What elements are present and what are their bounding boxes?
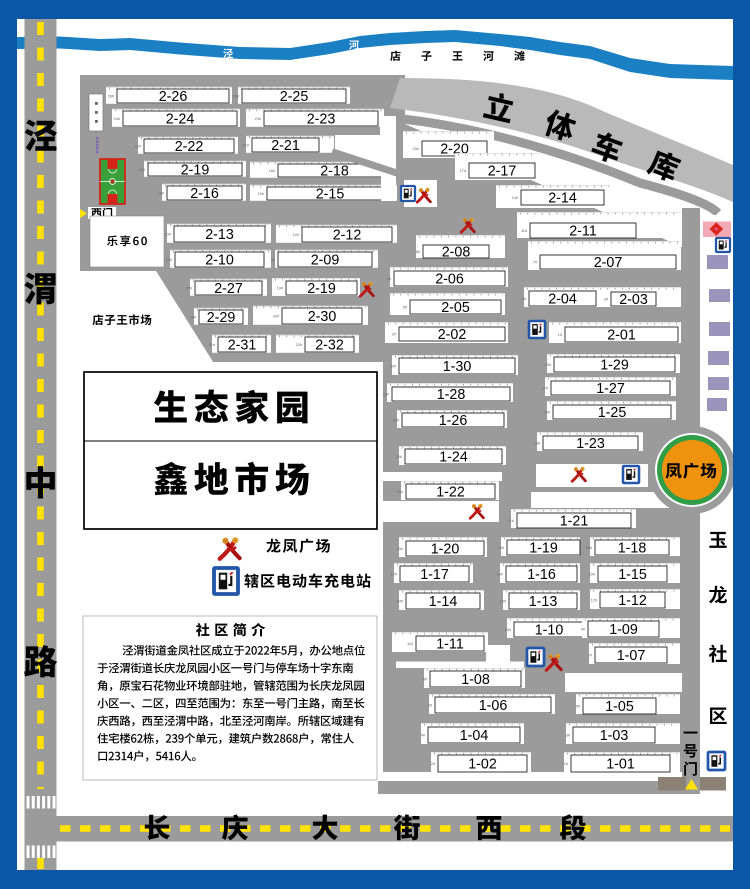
svg-text:25#: 25# <box>544 411 551 415</box>
svg-text:11#: 11# <box>521 229 528 233</box>
svg-text:30#: 30# <box>273 315 280 319</box>
svg-text:11#: 11# <box>407 642 414 646</box>
svg-text:2-04: 2-04 <box>548 292 577 308</box>
svg-text:14#: 14# <box>397 600 404 604</box>
svg-text:1-27: 1-27 <box>596 381 625 397</box>
svg-text:21#: 21# <box>508 519 515 523</box>
svg-text:2-05: 2-05 <box>441 300 470 316</box>
svg-text:12#: 12# <box>293 233 300 237</box>
svg-text:13#: 13# <box>165 233 172 237</box>
svg-text:20#: 20# <box>397 547 404 551</box>
svg-text:1-30: 1-30 <box>443 359 472 375</box>
svg-text:29#: 29# <box>190 316 197 320</box>
svg-text:12#: 12# <box>591 599 598 603</box>
svg-text:2-23: 2-23 <box>307 112 336 128</box>
svg-text:2-06: 2-06 <box>435 272 464 288</box>
svg-text:2-15: 2-15 <box>316 187 345 203</box>
svg-text:24#: 24# <box>114 117 121 121</box>
svg-text:17#: 17# <box>391 573 398 577</box>
svg-text:1-01: 1-01 <box>606 757 635 773</box>
svg-text:1-17: 1-17 <box>420 567 449 583</box>
svg-text:23#: 23# <box>255 117 262 121</box>
svg-text:14#: 14# <box>512 196 519 200</box>
svg-text:2-21: 2-21 <box>271 138 300 154</box>
svg-text:1-04: 1-04 <box>460 728 489 744</box>
svg-text:22#: 22# <box>397 490 404 494</box>
svg-text:1-25: 1-25 <box>598 405 627 421</box>
svg-text:15#: 15# <box>589 573 596 577</box>
svg-text:1-13: 1-13 <box>529 594 558 610</box>
svg-text:1-16: 1-16 <box>527 567 556 583</box>
svg-text:2-22: 2-22 <box>175 139 204 155</box>
svg-text:32#: 32# <box>296 343 303 347</box>
svg-text:2-17: 2-17 <box>488 164 517 180</box>
svg-text:2-30: 2-30 <box>308 309 337 325</box>
svg-text:22#: 22# <box>135 145 142 149</box>
svg-text:2-24: 2-24 <box>166 112 195 128</box>
svg-text:1-29: 1-29 <box>600 358 629 374</box>
svg-text:19#: 19# <box>277 287 284 291</box>
svg-text:1-07: 1-07 <box>617 648 646 664</box>
svg-text:1-03: 1-03 <box>600 728 629 744</box>
svg-text:2-12: 2-12 <box>333 228 362 244</box>
svg-text:2-13: 2-13 <box>205 227 234 243</box>
svg-text:19#: 19# <box>139 168 146 172</box>
svg-text:2-03: 2-03 <box>619 292 648 308</box>
svg-text:1-09: 1-09 <box>609 622 638 638</box>
svg-text:2-25: 2-25 <box>280 89 309 105</box>
svg-text:2-10: 2-10 <box>205 253 234 269</box>
svg-text:1-12: 1-12 <box>618 593 647 609</box>
svg-text:16#: 16# <box>158 192 165 196</box>
svg-text:19#: 19# <box>498 546 505 550</box>
svg-text:2-09: 2-09 <box>311 253 340 269</box>
svg-text:28#: 28# <box>383 393 390 397</box>
svg-text:1-05: 1-05 <box>605 699 634 715</box>
svg-text:27#: 27# <box>542 387 549 391</box>
svg-text:2-18: 2-18 <box>320 164 349 180</box>
svg-text:2-16: 2-16 <box>190 186 219 202</box>
svg-text:21#: 21# <box>243 144 250 148</box>
svg-text:2-08: 2-08 <box>442 245 471 261</box>
svg-text:13#: 13# <box>500 600 507 604</box>
svg-text:2-02: 2-02 <box>438 327 467 343</box>
svg-text:31#: 31# <box>209 343 216 347</box>
svg-text:1-18: 1-18 <box>618 541 647 557</box>
svg-text:1-21: 1-21 <box>560 514 589 530</box>
svg-text:2-07: 2-07 <box>594 255 623 271</box>
svg-text:2-11: 2-11 <box>569 224 597 240</box>
svg-text:10#: 10# <box>505 628 512 632</box>
svg-text:1-19: 1-19 <box>529 541 558 557</box>
svg-text:1-28: 1-28 <box>437 387 466 403</box>
svg-text:15#: 15# <box>258 192 265 196</box>
svg-text:1-23: 1-23 <box>576 436 605 452</box>
svg-text:1-11: 1-11 <box>436 637 464 653</box>
svg-text:2-01: 2-01 <box>607 328 636 344</box>
svg-text:1-24: 1-24 <box>439 450 468 466</box>
svg-text:18#: 18# <box>269 169 276 173</box>
svg-text:24#: 24# <box>396 455 403 459</box>
svg-text:2-31: 2-31 <box>228 338 257 354</box>
svg-text:26#: 26# <box>393 419 400 423</box>
svg-text:30#: 30# <box>390 365 397 369</box>
svg-text:2-32: 2-32 <box>315 338 344 354</box>
svg-text:2-27: 2-27 <box>214 281 243 297</box>
svg-text:2-19: 2-19 <box>307 281 336 297</box>
svg-text:1-06: 1-06 <box>479 698 508 714</box>
svg-text:1-08: 1-08 <box>461 672 490 688</box>
svg-text:25#: 25# <box>233 95 240 99</box>
svg-text:27#: 27# <box>186 287 193 291</box>
svg-text:2-29: 2-29 <box>207 310 236 326</box>
svg-text:1-15: 1-15 <box>618 567 647 583</box>
svg-text:1-20: 1-20 <box>431 542 460 558</box>
svg-text:1-22: 1-22 <box>436 485 465 501</box>
svg-text:16#: 16# <box>497 573 504 577</box>
svg-text:17#: 17# <box>460 169 467 173</box>
svg-text:1-02: 1-02 <box>468 757 497 773</box>
svg-text:1-26: 1-26 <box>439 413 468 429</box>
svg-text:2-26: 2-26 <box>159 89 188 105</box>
svg-text:1-14: 1-14 <box>429 594 458 610</box>
svg-text:2-19: 2-19 <box>181 163 210 179</box>
svg-text:10#: 10# <box>166 258 173 262</box>
svg-text:18#: 18# <box>586 546 593 550</box>
svg-text:20#: 20# <box>413 147 420 151</box>
svg-text:2-14: 2-14 <box>548 191 577 207</box>
svg-text:23#: 23# <box>534 442 541 446</box>
svg-text:1-10: 1-10 <box>535 623 564 639</box>
svg-text:26#: 26# <box>108 95 115 99</box>
svg-text:29#: 29# <box>545 363 552 367</box>
